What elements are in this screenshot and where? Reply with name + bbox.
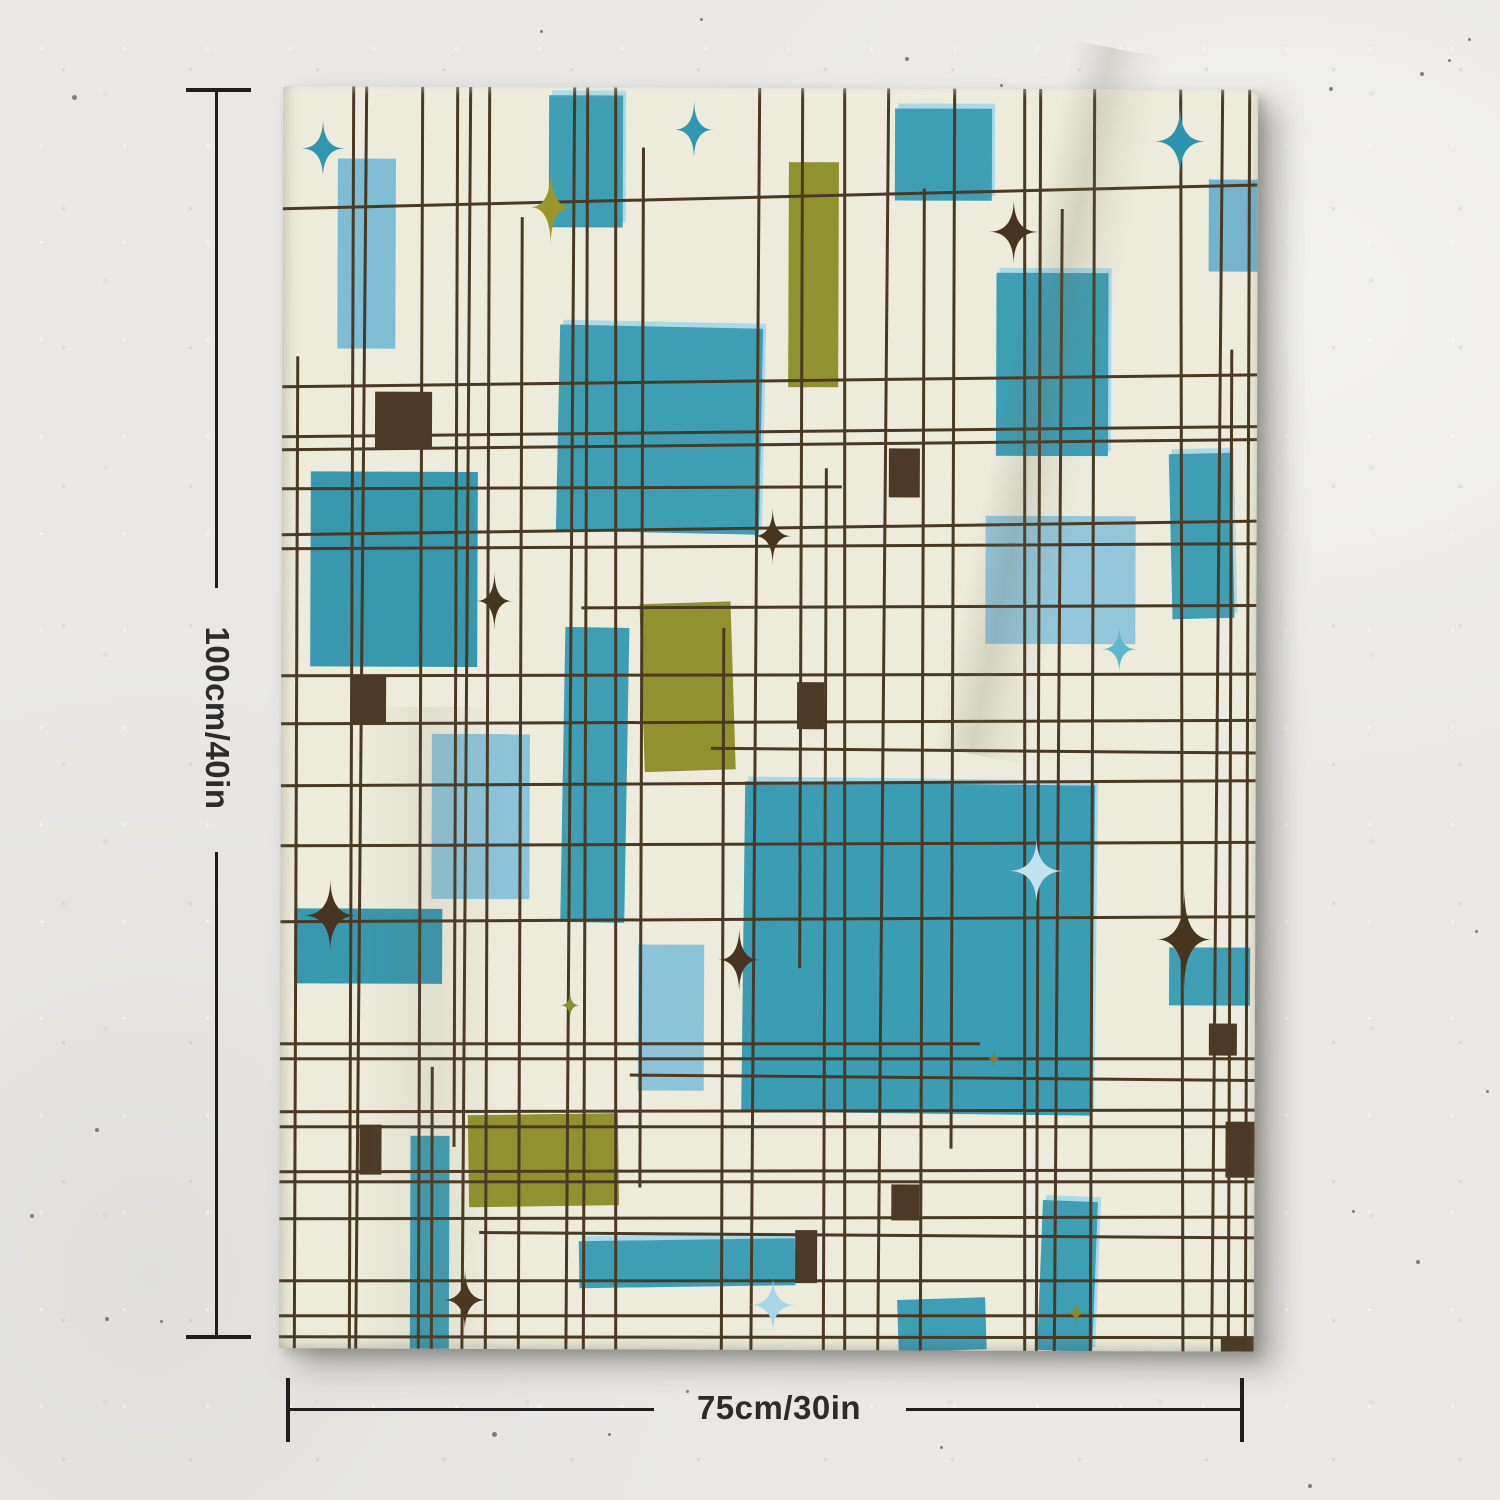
wall-speck <box>608 1433 611 1436</box>
grid-node-square <box>889 448 920 497</box>
wall-speck <box>1448 59 1451 62</box>
height-dimension-label: 100cm/40in <box>198 627 236 810</box>
starburst-icon <box>754 507 792 565</box>
grid-line-vertical <box>292 356 298 1348</box>
grid-node-square <box>1209 1024 1237 1056</box>
wall-speck <box>1308 1484 1312 1488</box>
height-dimension-line-top <box>215 90 218 588</box>
wall-speck <box>1420 72 1424 76</box>
starburst-icon <box>718 927 760 993</box>
grid-line-vertical <box>918 189 925 1351</box>
width-dimension-cap-right <box>1240 1378 1244 1442</box>
wall-speck <box>95 1128 99 1132</box>
starburst-icon <box>1156 889 1212 989</box>
grid-node-square <box>1225 1122 1254 1178</box>
wall-speck <box>1329 87 1333 91</box>
pattern-block <box>431 734 530 899</box>
grid-node-square <box>795 1230 817 1283</box>
grid-node-square <box>891 1184 919 1220</box>
wall-speck <box>700 18 703 21</box>
starburst-icon <box>749 1277 797 1333</box>
starburst-icon <box>303 878 357 952</box>
grid-line-horizontal <box>282 373 1257 388</box>
grid-line-horizontal <box>281 718 1256 724</box>
height-dimension-line-bottom <box>215 852 218 1338</box>
pattern-block <box>897 1297 987 1351</box>
starburst-icon <box>476 571 512 631</box>
pattern-block <box>741 781 1095 1115</box>
starburst-icon <box>674 100 714 160</box>
wall-speck <box>30 1214 34 1218</box>
width-dimension-line-right <box>906 1408 1242 1411</box>
wall-speck <box>686 1390 689 1393</box>
grid-node-square <box>375 392 432 449</box>
grid-line-horizontal <box>711 746 1256 754</box>
starburst-icon <box>989 199 1039 265</box>
starburst-icon <box>301 118 345 178</box>
height-dimension-cap-top <box>186 88 251 92</box>
pattern-block <box>638 945 705 1091</box>
grid-line-horizontal <box>279 1335 1254 1339</box>
width-dimension-label: 75cm/30in <box>697 1389 861 1427</box>
grid-node-square <box>352 677 386 724</box>
starburst-icon <box>1154 106 1206 176</box>
product-photo: 100cm/40in 75cm/30in <box>0 0 1500 1500</box>
wall-speck <box>160 1320 163 1323</box>
pattern-block <box>310 471 478 667</box>
wall-speck <box>940 1446 943 1449</box>
grid-line-horizontal <box>280 1057 1255 1060</box>
wall-speck <box>1352 1210 1355 1213</box>
grid-line-horizontal <box>479 1230 1254 1238</box>
wall-speck <box>540 30 543 33</box>
starburst-icon <box>1101 625 1137 673</box>
width-dimension-line-left <box>288 1408 654 1411</box>
wall-speck <box>1486 1090 1489 1093</box>
width-dimension-cap-left <box>286 1378 290 1442</box>
grid-line-vertical <box>749 88 761 1350</box>
starburst-icon <box>1008 837 1064 905</box>
grid-node-square <box>797 682 824 729</box>
wall-speck <box>105 1317 109 1321</box>
tapestry <box>279 86 1258 1351</box>
grid-line-vertical <box>614 87 617 1349</box>
pattern-block <box>1209 180 1258 272</box>
grid-node-square <box>1221 1337 1254 1352</box>
pattern-block <box>895 108 992 200</box>
grid-node-square <box>359 1125 381 1175</box>
starburst-icon <box>987 1049 1001 1069</box>
wall-speck <box>1416 1260 1420 1264</box>
wall-speck <box>1475 930 1478 933</box>
grid-line-horizontal <box>280 1125 1255 1128</box>
wall-speck <box>1000 84 1003 87</box>
starburst-icon <box>560 991 580 1019</box>
grid-line-horizontal <box>280 1108 1255 1113</box>
wall-speck <box>905 57 909 61</box>
starburst-icon <box>443 1269 487 1331</box>
grid-line-vertical <box>843 88 846 1350</box>
grid-line-horizontal <box>280 1042 980 1045</box>
grid-line-horizontal <box>283 183 1258 210</box>
pattern-layer <box>279 86 1258 1351</box>
wall-speck <box>1468 38 1471 41</box>
starburst-icon <box>1066 1300 1086 1326</box>
grid-line-horizontal <box>279 1180 1254 1183</box>
wall-speck <box>72 95 77 100</box>
pattern-block <box>1169 453 1235 619</box>
starburst-icon <box>530 168 572 246</box>
height-dimension-cap-bottom <box>186 1335 251 1339</box>
wall-speck <box>492 1432 497 1437</box>
